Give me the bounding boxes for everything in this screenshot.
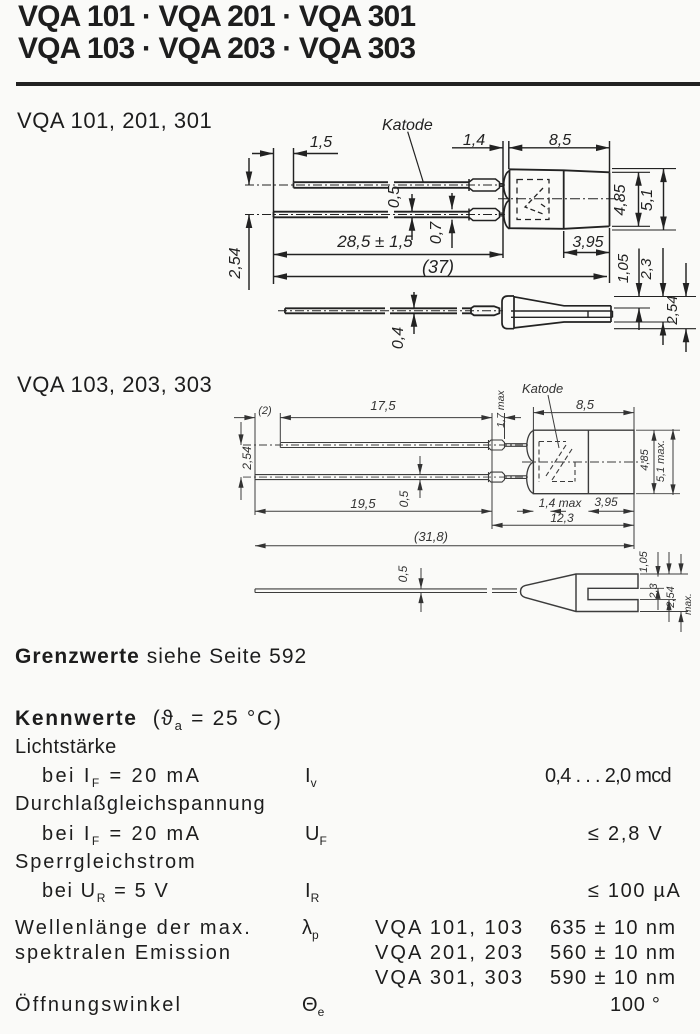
svg-text:3,95: 3,95 [572,234,603,251]
svg-text:(31,8): (31,8) [414,529,448,544]
svg-text:2,54: 2,54 [664,295,681,325]
svg-text:1,4 max: 1,4 max [539,496,583,510]
svg-text:2,3: 2,3 [638,258,655,281]
svg-text:1,4: 1,4 [463,132,485,149]
svg-text:Katode: Katode [522,381,563,396]
svg-text:(2): (2) [258,405,272,417]
svg-text:1,7 max: 1,7 max [495,390,507,428]
svg-text:0,5: 0,5 [386,186,403,208]
svg-text:2,3: 2,3 [648,582,660,599]
svg-text:0,5: 0,5 [396,565,410,582]
svg-text:4,85: 4,85 [612,184,629,215]
svg-text:1,05: 1,05 [615,253,632,283]
svg-text:0,7: 0,7 [428,221,445,244]
svg-text:3,95: 3,95 [594,495,618,509]
svg-text:0,5: 0,5 [397,490,411,507]
svg-text:2,54: 2,54 [665,586,677,608]
svg-text:5,1: 5,1 [639,189,656,211]
svg-text:1,05: 1,05 [638,550,650,572]
svg-text:0,4: 0,4 [390,327,407,349]
svg-text:17,5: 17,5 [370,398,396,413]
svg-text:Katode: Katode [382,117,433,134]
svg-text:(37): (37) [422,257,454,277]
svg-text:8,5: 8,5 [576,397,595,412]
svg-text:28,5 ± 1,5: 28,5 ± 1,5 [336,232,413,251]
svg-text:max.: max. [683,593,694,615]
svg-text:12,3: 12,3 [550,511,574,525]
svg-text:4,85: 4,85 [639,448,651,470]
svg-text:2,54: 2,54 [227,247,244,279]
svg-text:2,54: 2,54 [240,446,254,471]
svg-text:1,5: 1,5 [310,134,332,151]
svg-text:5,1 max.: 5,1 max. [655,440,667,482]
svg-text:8,5: 8,5 [549,132,571,149]
svg-text:19,5: 19,5 [350,496,376,511]
